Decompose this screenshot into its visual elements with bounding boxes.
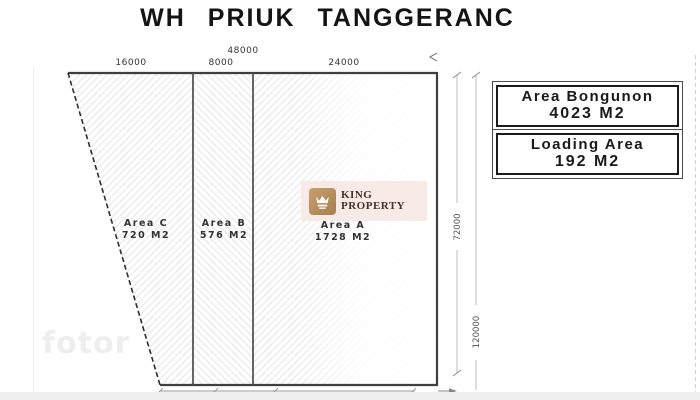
bottom-edge-strip	[0, 392, 700, 400]
king-property-logo: KING PROPERTY	[301, 181, 427, 221]
vertical-dimension-lines: 72000 120000	[450, 72, 482, 390]
info-box-loading-area: Loading Area 192 M2	[492, 129, 683, 179]
info-box-building-area-inner: Area Bongunon 4023 M2	[496, 85, 679, 127]
area-a-size: 1728 M2	[315, 232, 371, 243]
dim-width-area-a: 24000	[328, 58, 359, 68]
dim-total-depth: 120000	[472, 316, 482, 348]
logo-line-2: PROPERTY	[341, 201, 405, 212]
crown-icon	[309, 188, 336, 215]
dim-total-width: 48000	[227, 46, 258, 56]
dim-width-area-c: 16000	[115, 58, 146, 68]
logo-text: KING PROPERTY	[341, 190, 405, 212]
dim-building-depth: 72000	[453, 213, 463, 240]
page-title: WH PRIUK TANGGERANC	[0, 4, 655, 33]
dim-width-area-b: 8000	[209, 58, 234, 68]
loading-area-label: Loading Area	[498, 136, 677, 153]
area-c-name: Area C	[124, 218, 168, 229]
area-c-size: 720 M2	[122, 230, 170, 241]
area-b-hatch	[193, 73, 253, 385]
info-box-loading-area-inner: Loading Area 192 M2	[496, 133, 679, 175]
area-b-size: 576 M2	[200, 230, 248, 241]
building-area-label: Area Bongunon	[498, 88, 677, 105]
area-b-name: Area B	[202, 218, 246, 229]
info-box-building-area: Area Bongunon 4023 M2	[492, 81, 683, 131]
top-dimension-labels: 48000 16000 8000 24000	[115, 46, 437, 68]
fotor-watermark: fotor	[42, 326, 130, 361]
dimension-arrow-icon	[430, 53, 437, 61]
loading-area-value: 192 M2	[498, 153, 677, 171]
area-a-name: Area A	[321, 220, 366, 231]
building-area-value: 4023 M2	[498, 105, 677, 123]
